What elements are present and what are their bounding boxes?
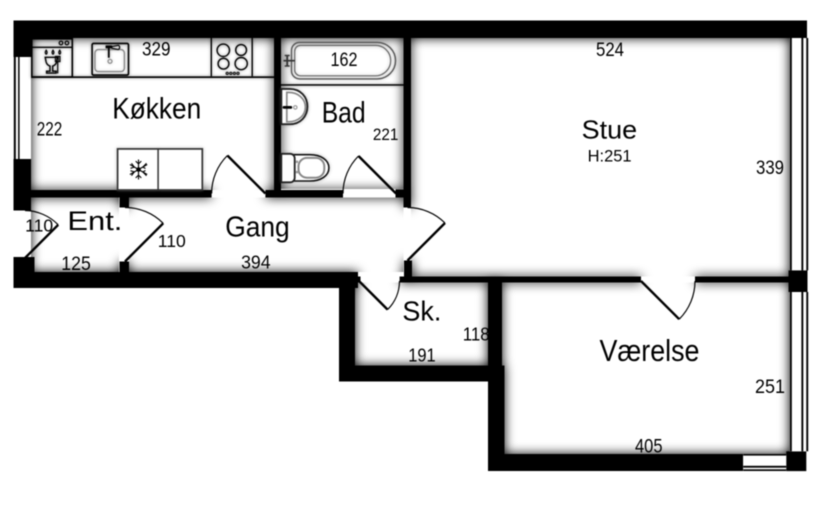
svg-text:Værelse: Værelse: [600, 333, 700, 368]
svg-text:394: 394: [241, 253, 271, 273]
svg-text:118: 118: [463, 324, 490, 345]
svg-text:162: 162: [331, 50, 358, 71]
svg-text:222: 222: [37, 119, 63, 140]
svg-text:329: 329: [142, 40, 171, 61]
svg-text:524: 524: [596, 40, 624, 61]
svg-text:Ent.: Ent.: [67, 206, 122, 236]
svg-text:Køkken: Køkken: [112, 92, 201, 125]
svg-text:251: 251: [755, 377, 785, 398]
svg-text:339: 339: [756, 158, 784, 179]
svg-text:Bad: Bad: [322, 97, 366, 130]
svg-text:125: 125: [61, 254, 91, 275]
svg-text:Gang: Gang: [225, 211, 290, 243]
svg-text:Sk.: Sk.: [402, 295, 441, 326]
svg-text:110: 110: [158, 231, 186, 251]
svg-text:110: 110: [25, 215, 53, 235]
svg-text:221: 221: [373, 125, 399, 144]
svg-text:Stue: Stue: [582, 114, 638, 144]
svg-text:H:251: H:251: [588, 146, 632, 165]
svg-text:405: 405: [635, 436, 663, 457]
svg-text:191: 191: [408, 345, 436, 366]
